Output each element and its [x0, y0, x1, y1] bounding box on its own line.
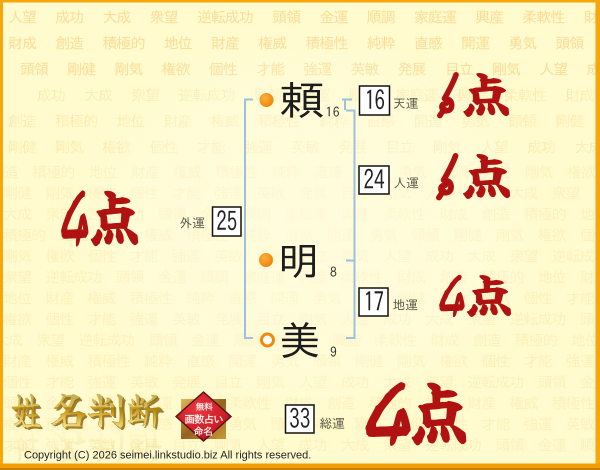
- svg-text:Copyright (C) 2026 seimei.link: Copyright (C) 2026 seimei.linkstudio.biz…: [24, 450, 311, 462]
